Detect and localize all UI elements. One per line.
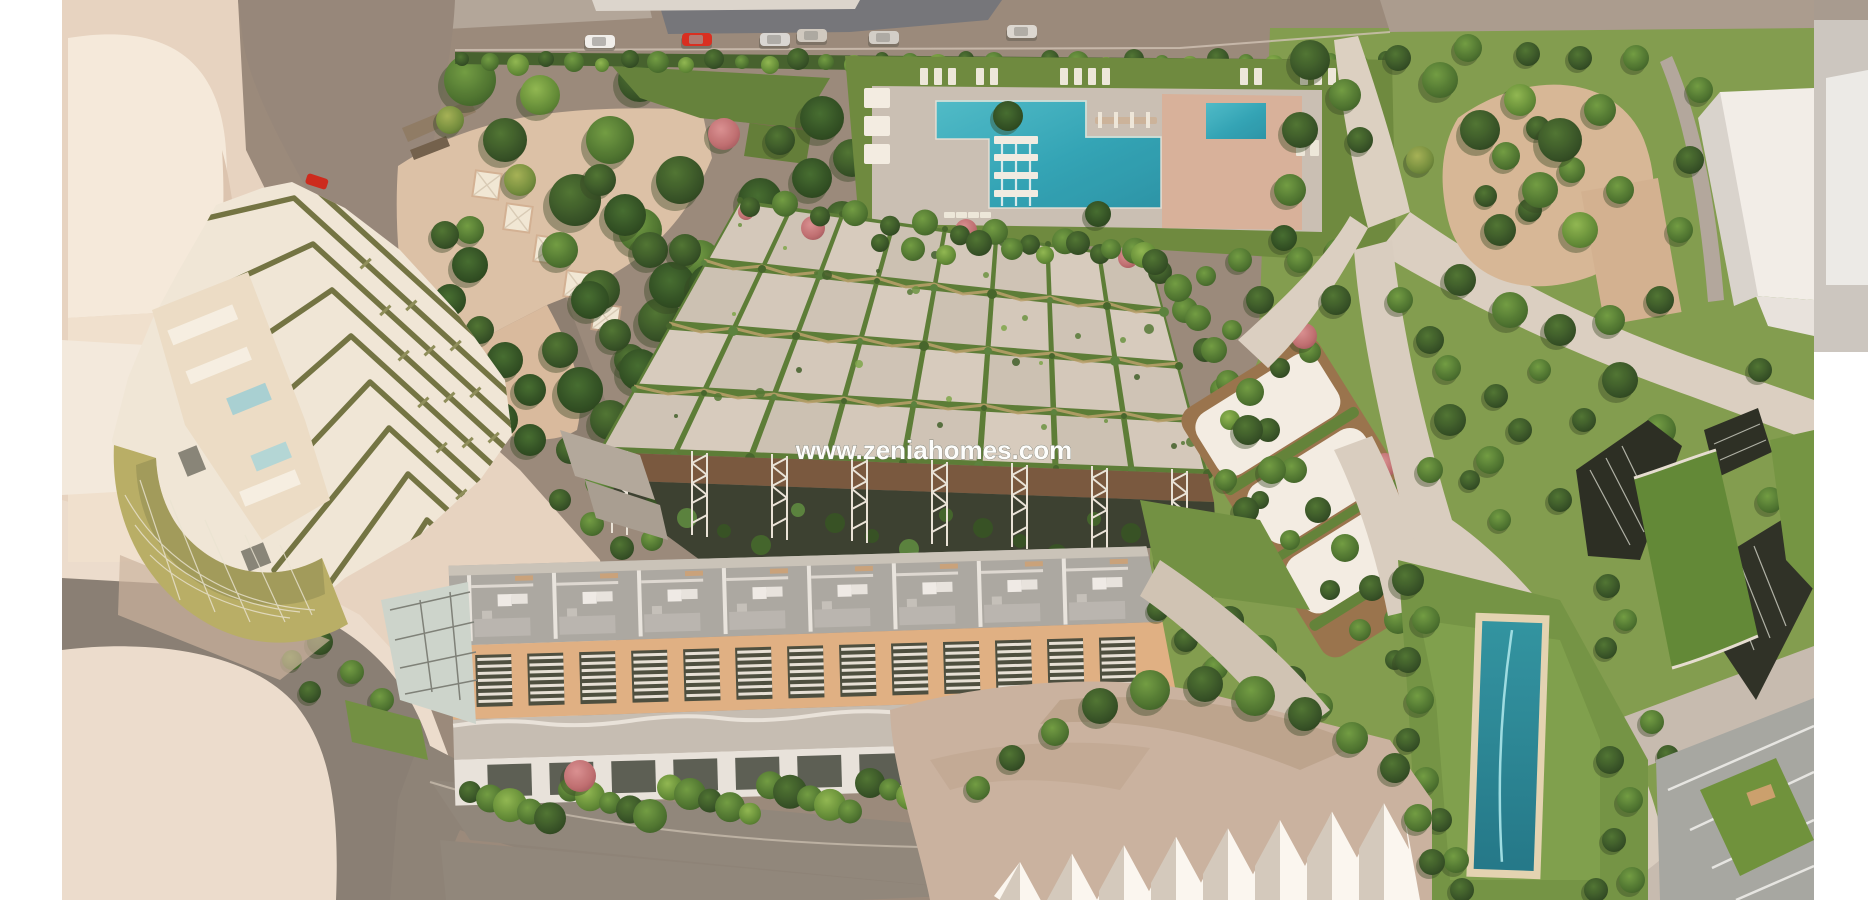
svg-text:www.zeniahomes.com: www.zeniahomes.com [795,435,1072,465]
